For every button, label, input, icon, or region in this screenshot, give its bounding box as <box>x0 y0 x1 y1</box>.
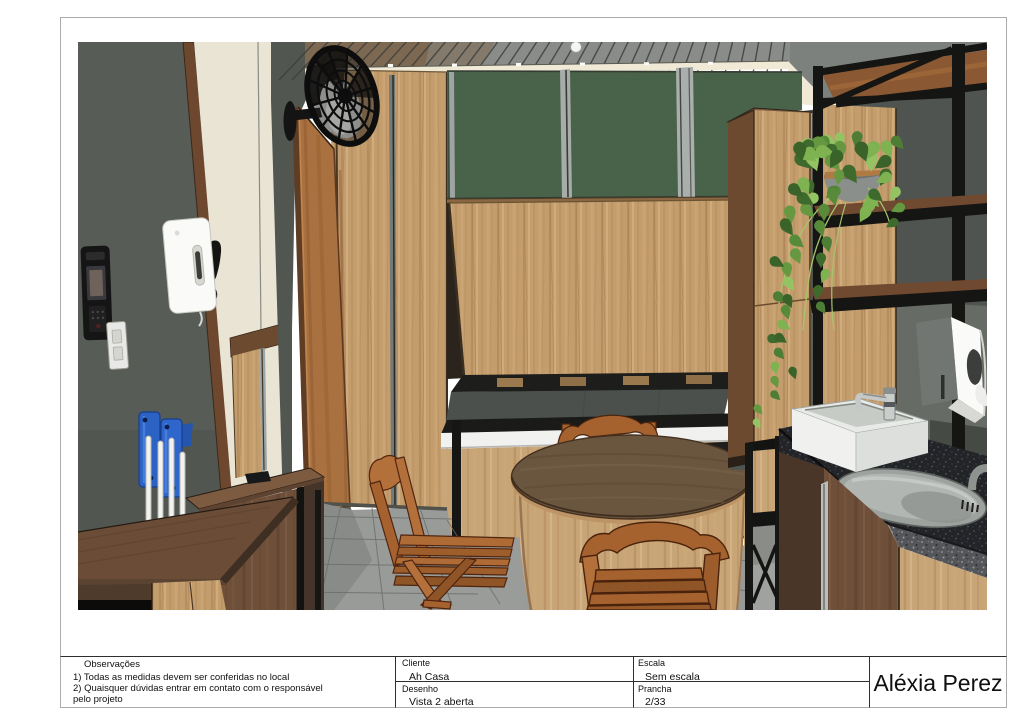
svg-text:Sem escala: Sem escala <box>645 671 700 683</box>
svg-text:Escala: Escala <box>638 658 665 668</box>
svg-text:Prancha: Prancha <box>638 684 672 694</box>
svg-text:Vista 2 aberta: Vista 2 aberta <box>409 696 474 708</box>
svg-text:Observações: Observações <box>84 659 140 670</box>
svg-text:2) Quaisquer dúvidas entrar em: 2) Quaisquer dúvidas entrar em contato c… <box>73 683 323 694</box>
svg-text:1) Todas as medidas devem ser: 1) Todas as medidas devem ser conferidas… <box>73 672 289 683</box>
svg-text:pelo projeto: pelo projeto <box>73 694 123 705</box>
svg-text:2/33: 2/33 <box>645 696 666 708</box>
svg-text:Cliente: Cliente <box>402 658 430 668</box>
svg-text:Ah Casa: Ah Casa <box>409 671 449 683</box>
svg-text:Desenho: Desenho <box>402 684 438 694</box>
svg-text:Aléxia Perez: Aléxia Perez <box>873 670 1002 696</box>
